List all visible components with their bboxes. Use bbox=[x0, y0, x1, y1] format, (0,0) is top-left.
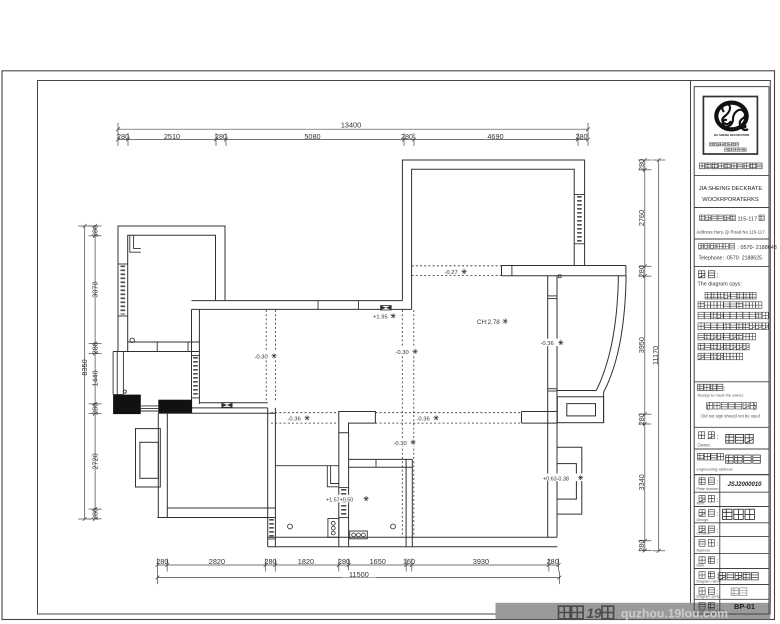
svg-text::: : bbox=[717, 558, 719, 565]
svg-text:Did not sign should not be use: Did not sign should not be used bbox=[701, 413, 760, 418]
svg-text:3070: 3070 bbox=[91, 281, 100, 297]
svg-text:engineering address: engineering address bbox=[697, 466, 733, 471]
svg-text:280: 280 bbox=[91, 403, 100, 415]
svg-text:280: 280 bbox=[91, 225, 100, 237]
svg-text::: : bbox=[717, 527, 719, 534]
svg-text:280: 280 bbox=[264, 557, 276, 566]
svg-text:280: 280 bbox=[338, 557, 350, 566]
svg-text:13400: 13400 bbox=[341, 121, 361, 130]
svg-text:11500: 11500 bbox=[349, 570, 369, 579]
svg-text:280: 280 bbox=[91, 508, 100, 520]
svg-text:3340: 3340 bbox=[637, 474, 646, 490]
svg-text:280: 280 bbox=[401, 132, 413, 141]
svg-text:Plate number.: Plate number. bbox=[697, 487, 720, 491]
svg-text:5080: 5080 bbox=[304, 132, 320, 141]
svg-text::: : bbox=[717, 511, 719, 518]
svg-text:-0.30: -0.30 bbox=[255, 355, 268, 361]
svg-text:quzhou.19lou.com: quzhou.19lou.com bbox=[621, 606, 728, 620]
svg-text:1440: 1440 bbox=[91, 370, 100, 386]
svg-text:BP-01: BP-01 bbox=[734, 602, 755, 611]
svg-text:280: 280 bbox=[575, 132, 587, 141]
svg-text:11170: 11170 bbox=[651, 346, 660, 365]
svg-text:-0.30: -0.30 bbox=[394, 441, 407, 447]
svg-text:280: 280 bbox=[156, 557, 168, 566]
svg-text:Diagram sorts.: Diagram sorts. bbox=[697, 594, 721, 598]
svg-text:280: 280 bbox=[637, 265, 646, 277]
svg-text:4690: 4690 bbox=[487, 132, 503, 141]
svg-text:Item.: Item. bbox=[697, 502, 705, 506]
svg-text:8350: 8350 bbox=[80, 359, 89, 375]
svg-text:19: 19 bbox=[587, 606, 603, 621]
svg-text:-0.36: -0.36 bbox=[417, 417, 430, 423]
svg-text::: : bbox=[717, 497, 719, 504]
svg-text:280: 280 bbox=[637, 413, 646, 425]
svg-text:1650: 1650 bbox=[370, 557, 386, 566]
svg-text:JSJ2000010: JSJ2000010 bbox=[727, 482, 762, 488]
svg-text::: : bbox=[724, 385, 726, 392]
svg-text:-0.30: -0.30 bbox=[396, 350, 409, 356]
svg-text:The diagram says:: The diagram says: bbox=[698, 282, 742, 288]
svg-text:2760: 2760 bbox=[637, 210, 646, 226]
svg-text:2820: 2820 bbox=[209, 557, 225, 566]
svg-text:Date.: Date. bbox=[697, 564, 706, 568]
svg-text:280: 280 bbox=[547, 557, 559, 566]
svg-text:280: 280 bbox=[215, 132, 227, 141]
svg-text:1820: 1820 bbox=[298, 557, 314, 566]
svg-text:280: 280 bbox=[637, 540, 646, 552]
svg-text:280: 280 bbox=[637, 159, 646, 171]
svg-text:-0.27: -0.27 bbox=[445, 270, 458, 276]
svg-text:Design.: Design. bbox=[697, 518, 710, 522]
svg-text::: : bbox=[717, 273, 719, 280]
svg-text:JIA SHENG DECORATION: JIA SHENG DECORATION bbox=[714, 133, 750, 137]
svg-text:3930: 3930 bbox=[473, 557, 489, 566]
svg-text:2720: 2720 bbox=[91, 453, 100, 469]
svg-text:280: 280 bbox=[91, 342, 100, 354]
svg-text:WOCKRPORATERKS: WOCKRPORATERKS bbox=[702, 197, 759, 203]
svg-text:+1.95: +1.95 bbox=[373, 315, 388, 321]
svg-text:+1.57+0.50: +1.57+0.50 bbox=[326, 498, 353, 504]
svg-text:+0.63-0.38: +0.63-0.38 bbox=[543, 476, 569, 482]
svg-text:2510: 2510 bbox=[164, 132, 180, 141]
svg-text:-0.36: -0.36 bbox=[288, 417, 301, 423]
svg-text::: : bbox=[717, 433, 719, 440]
svg-text:280: 280 bbox=[117, 132, 129, 141]
svg-text:Approve: Approve bbox=[697, 549, 711, 553]
svg-text:: 0570- 2188648: : 0570- 2188648 bbox=[737, 245, 776, 251]
svg-text:Owner.: Owner. bbox=[698, 443, 711, 448]
svg-text:3950: 3950 bbox=[637, 337, 646, 353]
svg-text:CH:2.78: CH:2.78 bbox=[477, 319, 500, 326]
svg-text:115-117: 115-117 bbox=[737, 217, 757, 223]
svg-text::: : bbox=[717, 479, 719, 486]
svg-text:Diagram name.: Diagram name. bbox=[697, 580, 722, 584]
svg-text:-0.36: -0.36 bbox=[541, 341, 554, 347]
svg-text:Creation.: Creation. bbox=[697, 531, 712, 535]
svg-text:160: 160 bbox=[403, 557, 415, 566]
svg-text::: : bbox=[717, 541, 719, 548]
svg-text:Telephone: ·0570· 2188625: Telephone: ·0570· 2188625 bbox=[699, 256, 763, 262]
svg-text:Address:Hery, Qi Road No.115-1: Address:Hery, Qi Road No.115-117 bbox=[696, 229, 765, 234]
svg-text:Design to meet the owner.: Design to meet the owner. bbox=[698, 393, 744, 398]
svg-text:JIA SHEING DECKRATE: JIA SHEING DECKRATE bbox=[699, 186, 763, 192]
svg-text:): ) bbox=[754, 404, 756, 411]
